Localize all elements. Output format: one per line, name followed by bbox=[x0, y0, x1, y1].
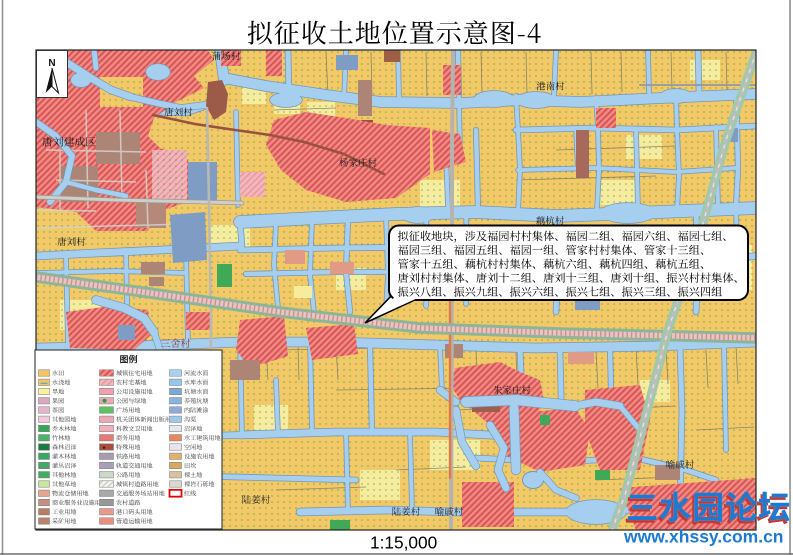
svg-text:1:15,000: 1:15,000 bbox=[370, 533, 437, 553]
svg-text:www.xhssy.com.cn: www.xhssy.com.cn bbox=[623, 527, 784, 547]
svg-text:N: N bbox=[48, 58, 55, 69]
